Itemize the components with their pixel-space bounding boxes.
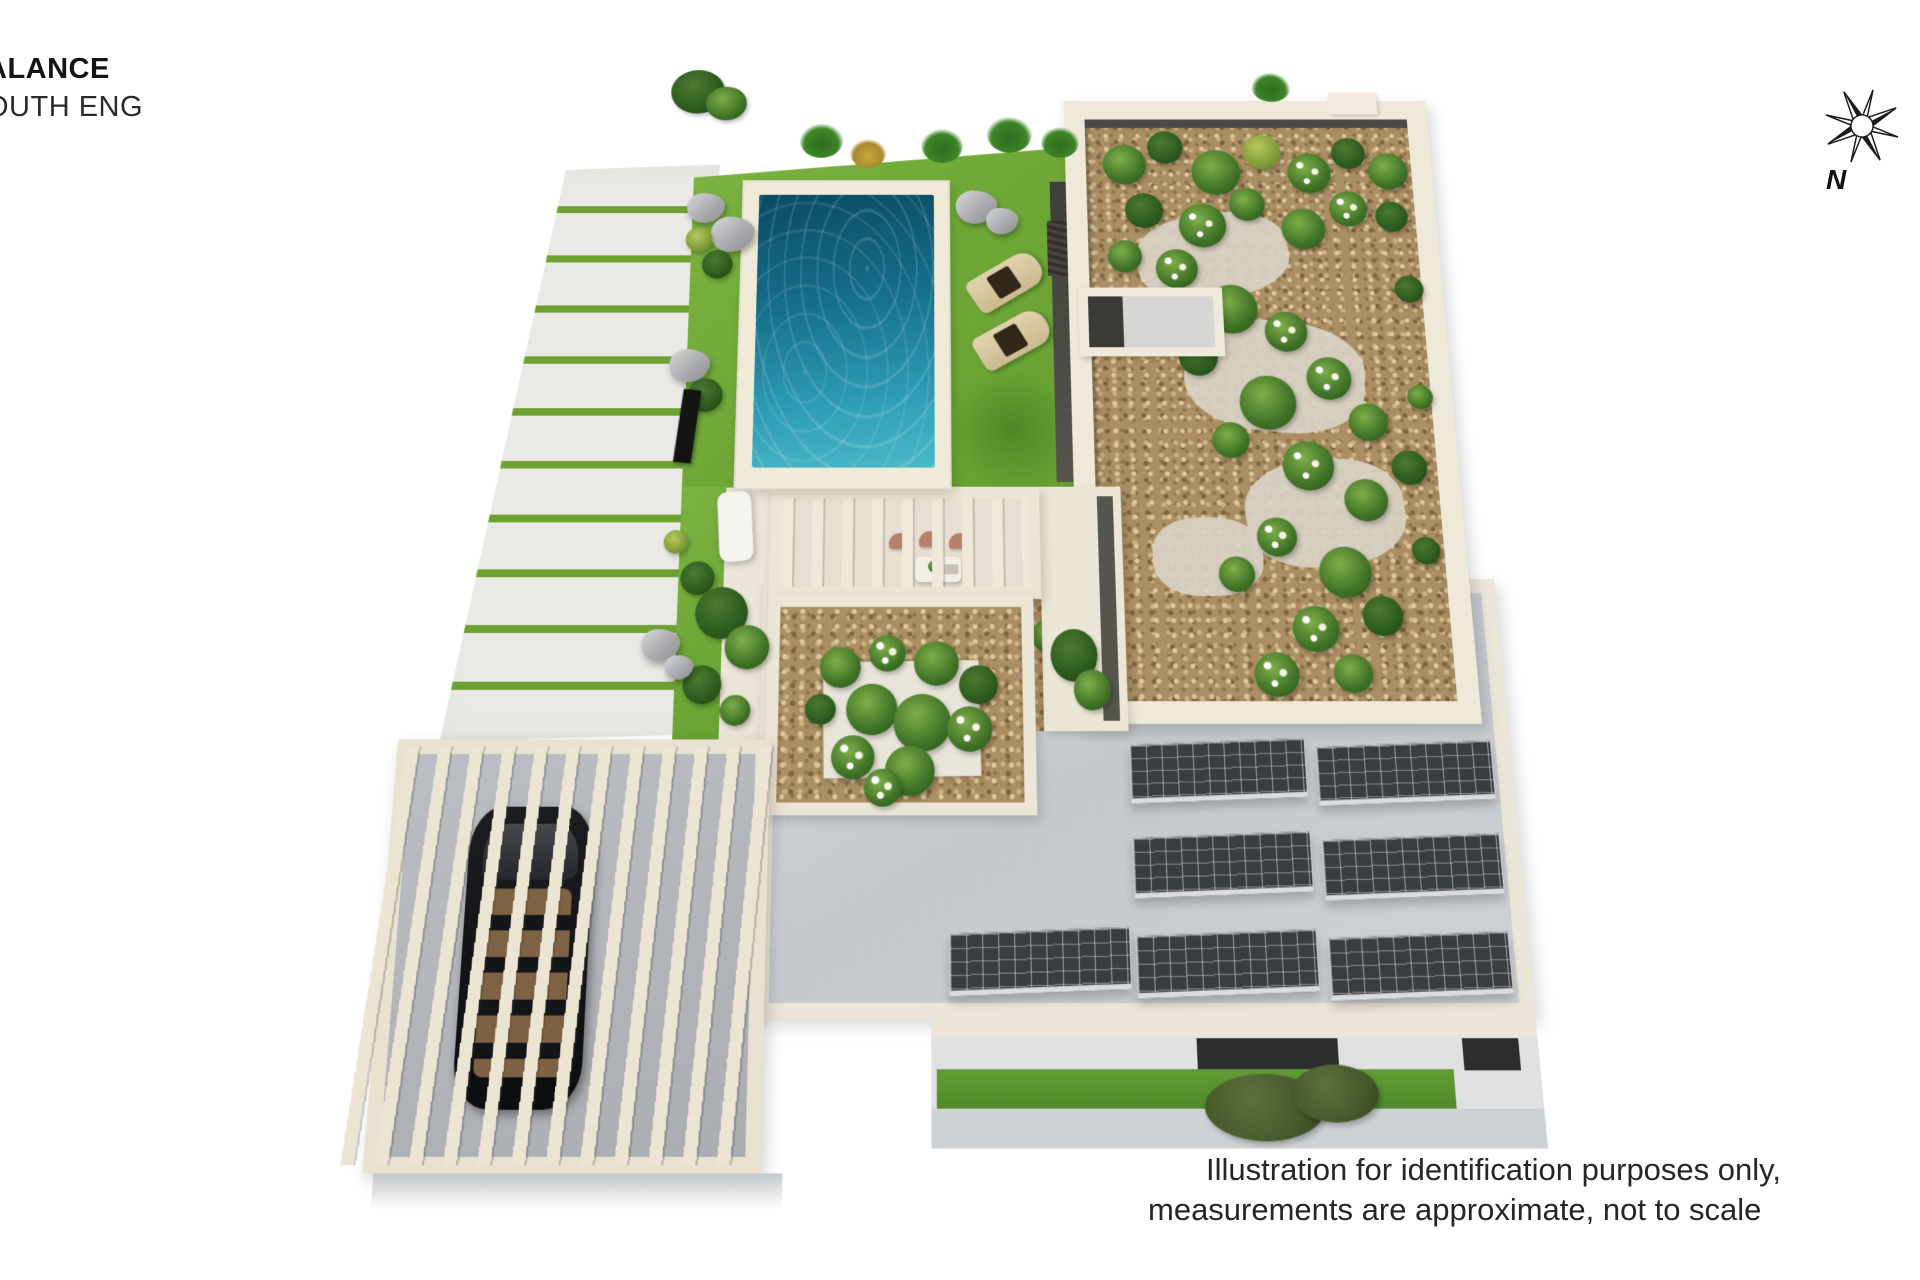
solar-panel	[1328, 931, 1514, 1001]
patio-notch	[1078, 287, 1225, 356]
garden-plant	[1390, 451, 1428, 485]
stone-clad-column	[1047, 221, 1068, 276]
pool-deck	[733, 180, 951, 489]
grass-tuft	[1041, 127, 1079, 158]
roof-garden-gravel	[1084, 119, 1457, 701]
patio-shadow	[1088, 296, 1124, 347]
garden-plant-flowering	[1155, 249, 1199, 288]
lounger-cushion	[986, 265, 1023, 300]
grass-tuft	[922, 129, 963, 163]
grass-tuft	[800, 124, 844, 158]
garden-wall-inner-face	[1084, 119, 1407, 127]
garden-plant	[1394, 276, 1425, 303]
garden-plant	[1374, 202, 1409, 232]
courtyard-garden	[763, 595, 1037, 815]
garden-plant-flowering	[1253, 652, 1301, 697]
garden-plant	[1411, 537, 1441, 564]
grass-tuft	[850, 139, 886, 168]
garden-plant	[1107, 240, 1142, 272]
lounger-cushion	[992, 323, 1029, 358]
page: ALANCE OUTH ENG N	[0, 0, 1920, 1280]
compass-north-label: N	[1826, 164, 1846, 196]
garden-plant	[1333, 654, 1375, 693]
dining-pergola	[768, 487, 1041, 599]
site-plan-illustration	[268, 80, 1561, 1176]
disclaimer-line2: measurements are approximate, not to sca…	[1148, 1190, 1920, 1230]
garden-plant	[1330, 138, 1366, 169]
courtyard-plant-flowering	[864, 769, 902, 807]
solar-panel	[1321, 833, 1504, 901]
planter-plant	[1073, 669, 1111, 710]
garden-plant	[1347, 404, 1389, 442]
garden-plant	[1361, 596, 1405, 636]
plan-title-line2: OUTH ENG	[0, 88, 143, 126]
pool-ripples	[752, 195, 935, 468]
street-facade	[931, 1019, 1548, 1149]
solar-panel	[1129, 738, 1308, 804]
grass-tuft	[987, 117, 1032, 153]
street-grass-strip	[937, 1069, 1457, 1108]
garden-plant	[1280, 209, 1326, 249]
carport-ground-shadow	[371, 1173, 783, 1209]
garden-plant	[1146, 131, 1183, 163]
garden-plant	[1190, 150, 1241, 195]
disclaimer: Illustration for identification purposes…	[1148, 1150, 1920, 1229]
pergola-slats	[781, 498, 1029, 587]
courtyard-plant-flowering	[947, 706, 993, 752]
facade-parapet	[931, 1019, 1537, 1037]
plan-title: ALANCE OUTH ENG	[0, 50, 143, 127]
courtyard-plant	[959, 665, 998, 704]
compass-rose-icon	[1816, 80, 1908, 172]
solar-panel	[1315, 740, 1496, 806]
garden-plant-flowering	[1291, 606, 1341, 652]
tree	[705, 87, 747, 121]
plan-title-line1: ALANCE	[0, 50, 143, 88]
garden-plant	[1242, 135, 1282, 169]
garden-plant	[1406, 385, 1433, 409]
white-lounger	[717, 490, 754, 562]
garden-plant-flowering	[1328, 191, 1368, 226]
solar-panel	[1132, 831, 1314, 899]
garden-plant-flowering	[1286, 153, 1332, 193]
roof-garden	[1064, 101, 1483, 724]
facade-window	[1462, 1038, 1521, 1070]
courtyard-plant	[846, 684, 898, 736]
courtyard-plant	[893, 694, 951, 752]
garden-plant	[1124, 193, 1163, 228]
courtyard-plant	[820, 647, 861, 688]
solar-panel	[1136, 929, 1321, 999]
courtyard-plant	[914, 641, 959, 686]
carport-slats	[340, 746, 791, 1165]
disclaimer-line1: Illustration for identification purposes…	[1206, 1150, 1920, 1190]
roof-access-box	[1327, 93, 1377, 115]
carport-pergola	[362, 739, 770, 1173]
courtyard-plant-flowering	[869, 635, 906, 671]
courtyard-plant-flowering	[831, 735, 875, 779]
pool-water	[752, 195, 935, 468]
garden-plant	[1367, 153, 1409, 189]
garden-plant	[1102, 145, 1147, 184]
solar-panel	[949, 927, 1132, 997]
grass-tuft	[1250, 73, 1291, 101]
